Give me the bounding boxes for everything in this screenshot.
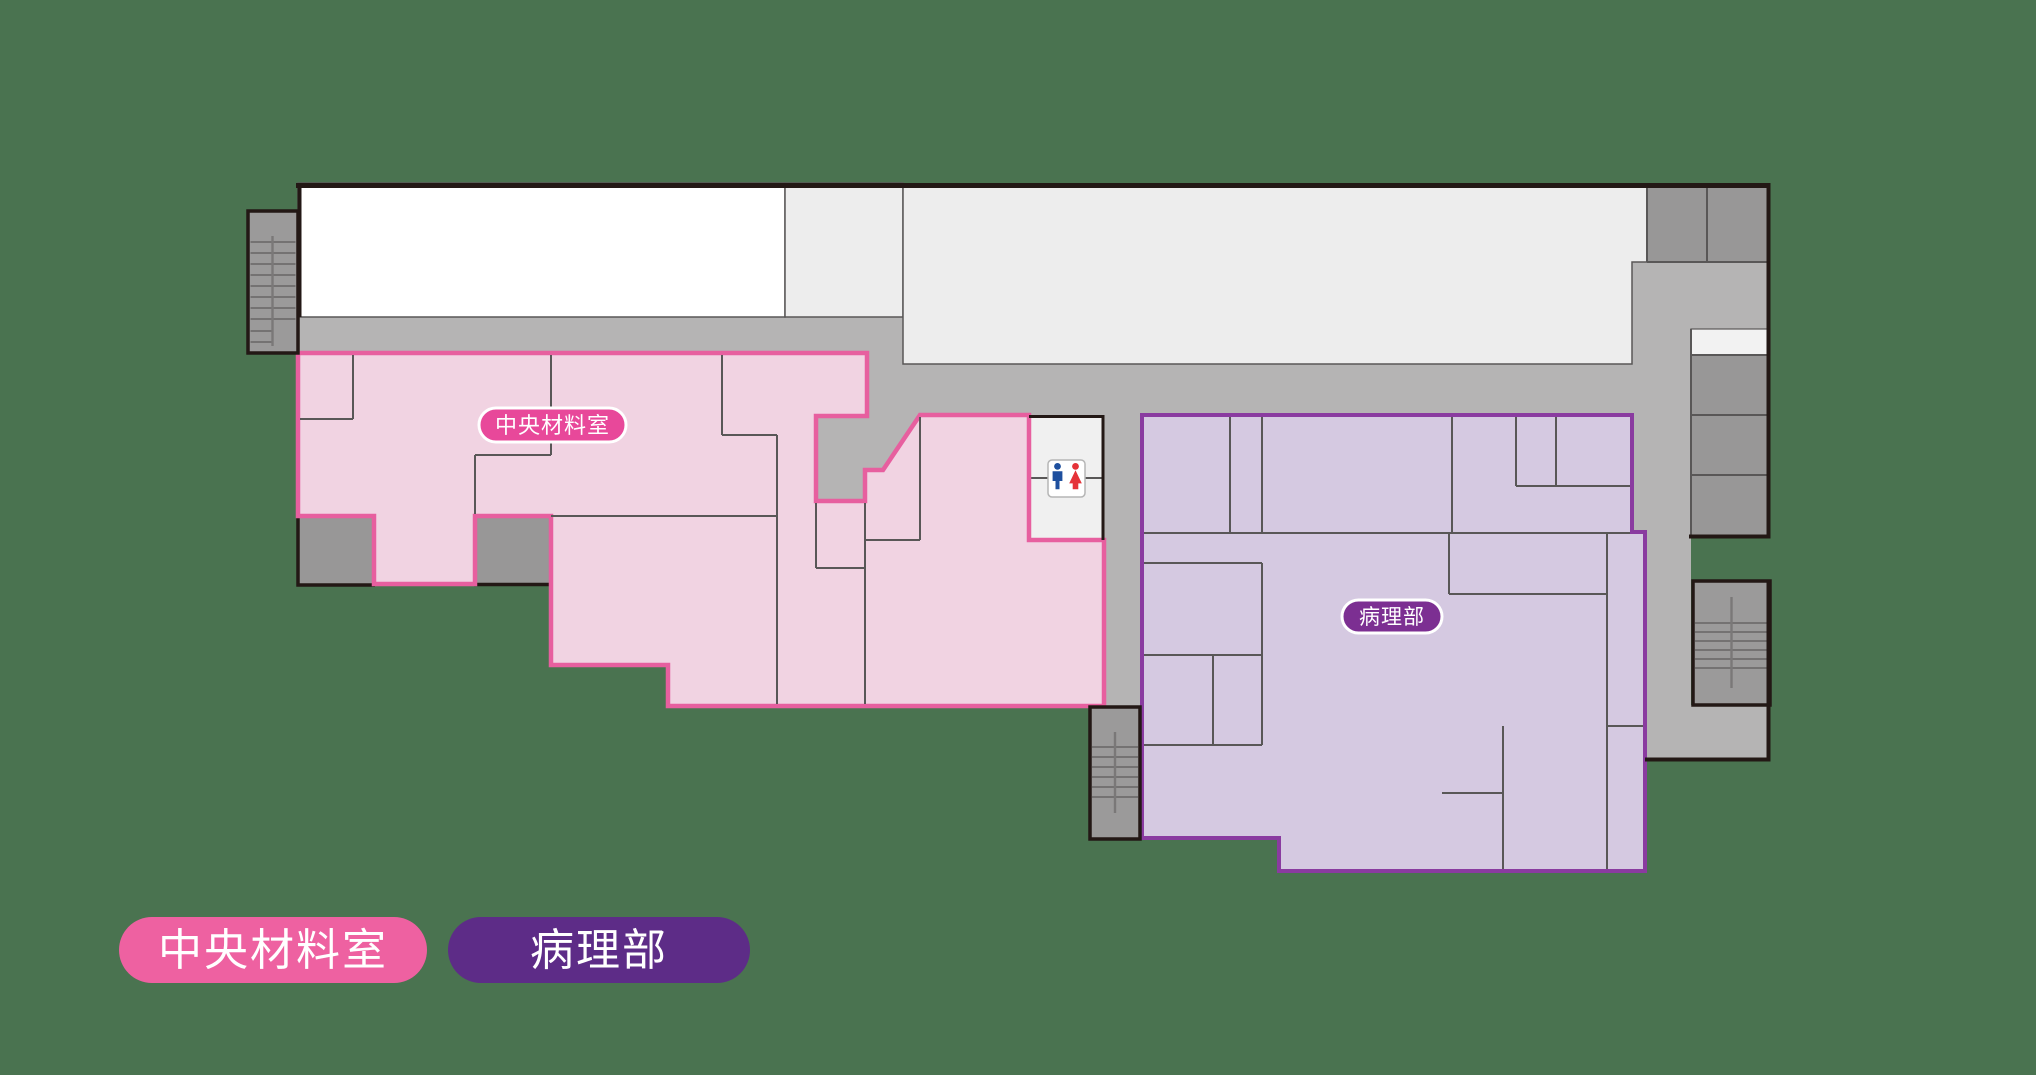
corridor-upper-center [903, 364, 1632, 416]
service-box-center [475, 516, 550, 584]
area-label-central-materials: 中央材料室 [479, 408, 626, 442]
restroom-sign [1048, 460, 1085, 497]
elevator-cells-right [1691, 355, 1770, 535]
stairwell-bottom-center [1090, 707, 1140, 839]
corridor-center-vertical [1104, 415, 1141, 707]
stairwell-top-left [248, 211, 298, 353]
room-top-large [903, 186, 1647, 364]
area-pathology [1142, 415, 1645, 871]
legend-label: 中央材料室 [158, 926, 388, 975]
hospital-floor-map: 中央材料室 病理部 中央材料室 病理部 [0, 0, 2036, 1075]
area-pill-label: 中央材料室 [495, 413, 610, 438]
legend-label: 病理部 [530, 926, 668, 975]
service-box-left [297, 516, 374, 584]
room-right-landing [1691, 329, 1770, 355]
legend-item-central-materials: 中央材料室 [119, 917, 427, 983]
room-top-small [785, 183, 903, 317]
stairwell-bottom-right [1693, 581, 1770, 705]
area-pill-label: 病理部 [1359, 606, 1425, 629]
area-label-pathology: 病理部 [1342, 600, 1442, 633]
corridor-upper-left [298, 317, 920, 353]
room-top-left-white [298, 183, 785, 317]
legend-item-pathology: 病理部 [448, 917, 750, 983]
